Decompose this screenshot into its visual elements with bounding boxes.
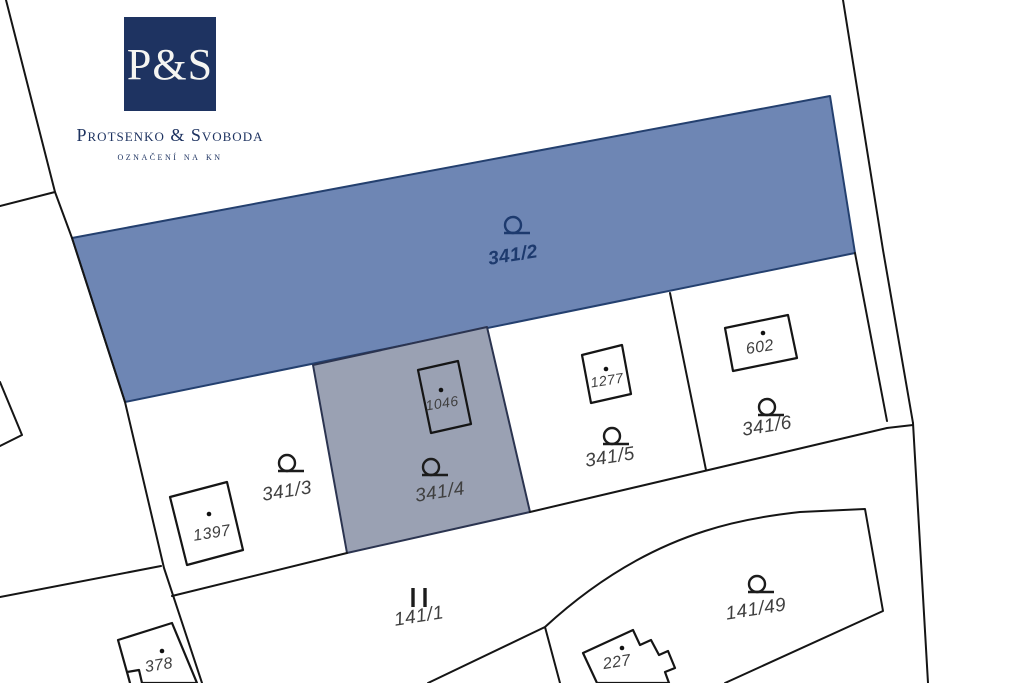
- building-1397-outline: [170, 482, 243, 565]
- logo-tagline: označení na kn: [60, 149, 280, 164]
- garden-icon: [603, 428, 629, 444]
- building-1397-dot: [207, 512, 212, 517]
- boundary-parcel-141-49-outline: [428, 509, 883, 683]
- garden-icon: [748, 576, 774, 592]
- building-1046-dot: [439, 388, 444, 393]
- boundary-divider-341-5-341-6: [670, 293, 706, 470]
- boundary-east-long-line: [843, 0, 913, 423]
- company-logo: P&S Protsenko & Svoboda označení na kn: [60, 10, 280, 164]
- garden-icon: [758, 399, 784, 415]
- boundary-west-corner: [0, 382, 22, 446]
- cadastral-map-page: 341/2 341/3 341/4 341/5 341/6 141/1 141/…: [0, 0, 1024, 683]
- building-227-dot: [620, 646, 625, 651]
- building-602-dot: [761, 331, 766, 336]
- building-378-dot: [160, 649, 165, 654]
- logo-square: P&S: [124, 17, 216, 111]
- boundary-east-strip-line: [855, 253, 887, 421]
- logo-company-name: Protsenko & Svoboda: [60, 125, 280, 146]
- building-1277-dot: [604, 367, 609, 372]
- garden-icon: [278, 455, 304, 471]
- logo-monogram: P&S: [127, 39, 213, 90]
- boundary-southwest-line: [0, 566, 161, 597]
- boundary-east-vertical: [913, 423, 928, 683]
- parcel-area-341-4-highlight: [313, 327, 530, 553]
- boundary-row-bottom: [172, 425, 913, 596]
- boundary-northwest-branch: [0, 192, 55, 206]
